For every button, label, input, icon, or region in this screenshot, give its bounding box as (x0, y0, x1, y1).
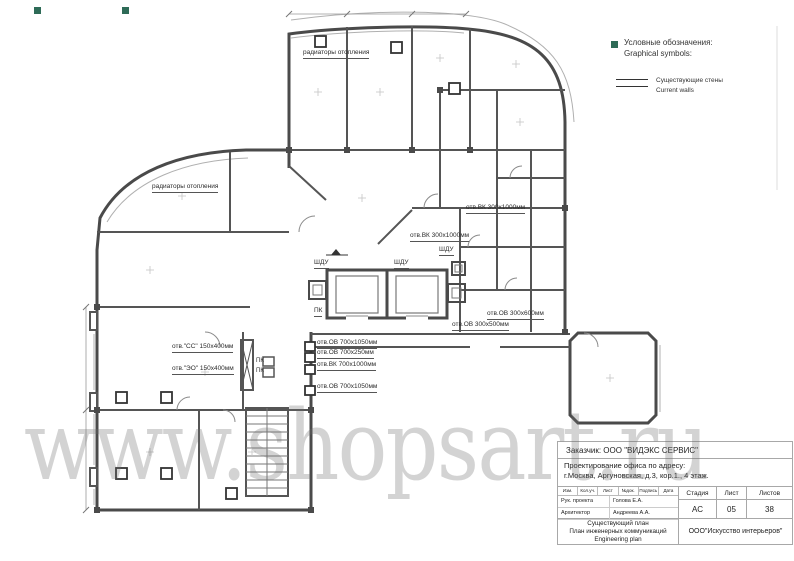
facade-thin-lines (94, 12, 660, 505)
project-line2: г.Москва, Аргуновская, д.3, кор.1., 4 эт… (564, 471, 792, 481)
stage-table: Стадия Лист Листов АС 05 38 (678, 487, 792, 518)
radiators-label: радиаторы отопления (152, 184, 218, 193)
drawing-sheet: радиаторы отопления радиаторы отопления … (0, 0, 794, 561)
document-title: Существующий план План инженерных коммун… (558, 519, 678, 544)
duct-label: отв.ОВ 300х500мм (452, 322, 509, 331)
role-row: Рук. проекта Голова Е.А. (558, 496, 678, 508)
stage-value-cell: АС (679, 500, 717, 518)
legend-wall-label-ru: Существующие стены (656, 76, 723, 86)
stage-value-cell: 05 (717, 500, 747, 518)
role-name: Андреева А.А. (610, 508, 678, 519)
shdu-label: ШДУ (394, 260, 409, 269)
duct-label: отв.ВК 300х1000мм (410, 233, 469, 242)
doc-title-line: План инженерных коммуникаций (558, 528, 678, 536)
role-title: Рук. проекта (558, 496, 610, 507)
role-name: Голова Е.А. (610, 496, 678, 507)
grip-handle (34, 7, 41, 14)
doc-title-line: Существующий план (558, 520, 678, 528)
company-name: ООО"Искусство интерьеров" (678, 519, 792, 544)
rev-col: Кол.уч. (578, 487, 598, 495)
stage-header-cell: Листов (747, 487, 792, 500)
shdu-label: ШДУ (314, 260, 329, 269)
shdu-label: ШДУ (439, 247, 454, 256)
title-block: Заказчик: ООО "ВИДЭКС СЕРВИС" Проектиров… (557, 441, 793, 545)
legend-wall-label-en: Current walls (656, 86, 723, 96)
rev-col: Подпись (639, 487, 659, 495)
project-line1: Проектирование офиса по адресу: (564, 461, 792, 471)
duct-label: отв.ОВ 300х600мм (487, 311, 544, 320)
revision-table: Изм. Кол.уч. Лист №док. Подпись Дата Рук… (558, 487, 678, 518)
role-title: Архитектор (558, 508, 610, 519)
stage-value-cell: 38 (747, 500, 792, 518)
rev-col: Дата (659, 487, 678, 495)
stage-header-cell: Лист (717, 487, 747, 500)
project-address: Проектирование офиса по адресу: г.Москва… (558, 459, 792, 487)
duct-label: отв."СС" 150х400мм (172, 344, 233, 353)
revision-header: Изм. Кол.уч. Лист №док. Подпись Дата (558, 487, 678, 496)
duct-label: отв.ВК 700х1000мм (317, 362, 376, 371)
doc-title-line: Engineering plan (558, 536, 678, 544)
legend-item-existing-walls: Существующие стены Current walls (616, 76, 787, 97)
pk-label: ПК (256, 358, 264, 364)
grip-handle (122, 7, 129, 14)
pk-label: ПК (314, 308, 322, 317)
elevator-shafts (327, 270, 447, 321)
pk-cabinets (263, 357, 274, 377)
outer-walls (97, 27, 656, 510)
rev-col: №док. (619, 487, 639, 495)
partition-walls (97, 26, 570, 510)
duct-label: отв.ОВ 700х1050мм (317, 340, 377, 349)
duct-label: отв."ЭО" 150х400мм (172, 366, 234, 375)
stage-header-cell: Стадия (679, 487, 717, 500)
existing-wall-symbol (616, 79, 648, 87)
pk-label: ПК (256, 368, 264, 374)
radiators-label: радиаторы отопления (303, 50, 369, 59)
duct-label: отв.ОВ 700х250мм (317, 350, 374, 359)
rev-col: Изм. (558, 487, 578, 495)
legend: Условные обозначения: Graphical symbols:… (612, 38, 787, 96)
elevation-marker-icon (326, 249, 348, 255)
client-row: Заказчик: ООО "ВИДЭКС СЕРВИС" (558, 442, 792, 459)
duct-label: отв.ОВ 700х1050мм (317, 384, 377, 393)
duct-label: отв.ВК 300х1000мм (466, 205, 525, 214)
crosshair-marks (146, 54, 614, 456)
legend-title-en: Graphical symbols: (624, 49, 787, 60)
rev-col: Лист (598, 487, 618, 495)
legend-title-ru: Условные обозначения: (624, 38, 787, 49)
